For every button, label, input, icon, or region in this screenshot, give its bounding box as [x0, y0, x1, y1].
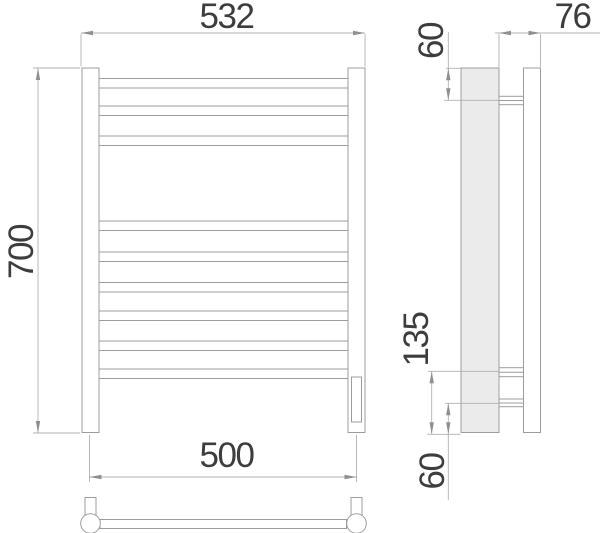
arrow-right: [353, 31, 365, 35]
dim-label-rail-length: 500: [200, 436, 255, 475]
bottom-tube: [100, 520, 347, 529]
rung-3: [99, 136, 348, 146]
foot-circle-left: [81, 514, 101, 533]
rung-9: [99, 369, 348, 379]
rung-8: [99, 341, 348, 351]
arrow-down: [446, 88, 450, 100]
dimension-700: 700: [2, 68, 80, 433]
dimension-532: 532: [81, 0, 365, 67]
dim-label-depth: 76: [555, 0, 591, 36]
bottom-view: [81, 498, 367, 533]
dimension-500: 500: [90, 435, 357, 482]
rung-5: [99, 252, 348, 262]
arrow-up: [446, 68, 450, 80]
dim-label-bracket-spacing: 135: [397, 313, 436, 367]
rung-4: [99, 221, 348, 231]
arrow-right: [345, 475, 357, 479]
arrow-down: [446, 422, 450, 434]
arrow-right: [529, 31, 541, 35]
side-view: [461, 68, 541, 433]
wall-profile: [524, 68, 541, 433]
front-view: [82, 68, 365, 433]
rung-1: [99, 79, 348, 89]
arrow-up: [36, 68, 40, 80]
rung-2: [99, 106, 348, 116]
drawing-canvas: 532 700 500 60 76 13: [0, 0, 600, 533]
dim-label-bottom-offset: 60: [413, 453, 452, 490]
dim-label-top-offset: 60: [412, 22, 451, 59]
heater-box: [352, 377, 362, 422]
dimension-76: 76: [495, 0, 600, 67]
arrow-left: [81, 31, 93, 35]
arrow-left: [90, 475, 102, 479]
arrow-down: [430, 422, 434, 434]
rung-7: [99, 311, 348, 321]
arrow-up: [446, 403, 450, 415]
rung-6: [99, 283, 348, 293]
foot-circle-right: [347, 514, 367, 533]
arrow-left: [499, 31, 511, 35]
arrow-up: [430, 371, 434, 383]
side-bar: [461, 68, 499, 433]
left-post: [82, 68, 99, 433]
dim-label-overall-width: 532: [200, 0, 254, 36]
technical-drawing-page: 532 700 500 60 76 13: [0, 0, 600, 533]
dim-label-overall-height: 700: [2, 224, 41, 279]
arrow-down: [36, 421, 40, 433]
